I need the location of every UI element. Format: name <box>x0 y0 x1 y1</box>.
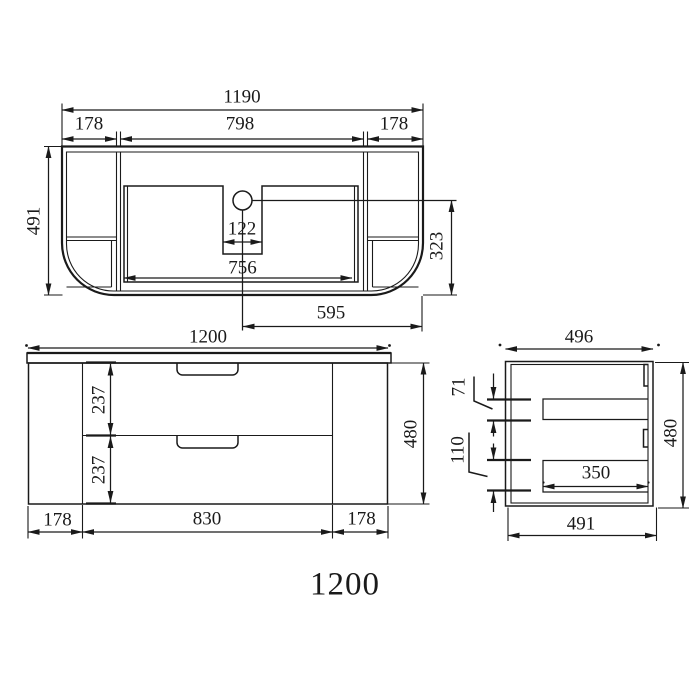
dim-text-bottom-depth: 491 <box>567 514 596 533</box>
side-outer-outline <box>506 362 654 507</box>
drawer-1-handle <box>177 363 238 375</box>
dim-text-height-side: 480 <box>662 419 681 448</box>
side-view <box>469 344 689 541</box>
dim-text-height-front: 480 <box>402 419 421 448</box>
dim-text-cutout-width: 756 <box>228 259 257 278</box>
drawing-size-title: 1200 <box>310 569 380 602</box>
faucet-hole <box>233 191 252 210</box>
dim-text-right-panel-front: 178 <box>347 510 376 529</box>
dim-text-overall-width-front: 1200 <box>189 328 227 347</box>
dim-text-depth-plan: 491 <box>25 207 44 236</box>
dim-text-right-panel-plan: 178 <box>380 114 409 133</box>
plan-right-divider <box>364 152 368 291</box>
dim-dot <box>25 344 28 347</box>
dim-text-bottom-rail: 110 <box>448 436 467 464</box>
dim-dot <box>388 344 391 347</box>
leader-line-71 <box>474 377 493 410</box>
dim-dot <box>647 481 649 483</box>
dim-text-top-rail: 71 <box>450 378 469 397</box>
dim-dot <box>542 481 544 483</box>
upper-drawer-box <box>543 399 648 420</box>
dim-text-bottom-drawer-height: 237 <box>90 456 109 485</box>
dim-dot <box>499 344 502 347</box>
dim-text-top-drawer-height: 237 <box>90 385 109 414</box>
dim-text-hole-width: 122 <box>228 219 257 238</box>
plan-left-shelf <box>67 237 117 287</box>
dim-text-depth-side: 496 <box>565 327 594 346</box>
dim-text-hole-to-side: 595 <box>317 303 346 322</box>
dim-text-drawer-width: 830 <box>193 509 222 528</box>
dim-text-left-panel-plan: 178 <box>75 115 104 134</box>
ext-lines-491 <box>44 147 63 296</box>
plan-right-shelf <box>368 237 419 287</box>
dim-text-overall-width-plan: 1190 <box>223 88 260 107</box>
dim-text-hole-to-front: 323 <box>428 231 447 260</box>
drawer-2-handle <box>177 436 238 448</box>
dim-dot <box>657 344 660 347</box>
leader-line-110 <box>469 433 488 477</box>
side-panel-lines <box>83 363 333 504</box>
side-inner-outline <box>511 365 648 504</box>
countertop <box>27 353 391 363</box>
dim-text-inner-depth: 350 <box>582 463 611 482</box>
dim-text-center-width-plan: 798 <box>226 115 255 134</box>
dim-text-left-panel-front: 178 <box>43 510 72 529</box>
technical-drawing-page: 1190 178 798 178 491 122 756 323 595 120… <box>0 0 700 700</box>
plan-left-divider <box>117 152 121 291</box>
